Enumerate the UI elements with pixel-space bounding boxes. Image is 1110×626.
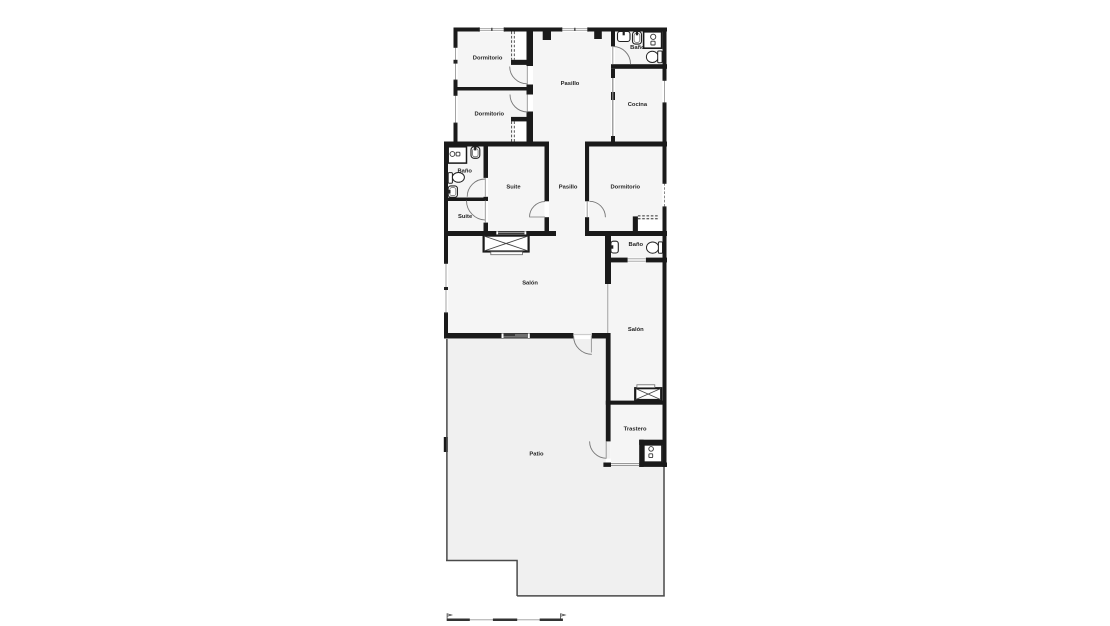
svg-text:Cocina: Cocina: [628, 102, 648, 108]
svg-text:Patio: Patio: [529, 452, 544, 458]
svg-text:Dormitorio: Dormitorio: [473, 55, 503, 61]
svg-text:Suite: Suite: [458, 214, 473, 220]
svg-text:Pasillo: Pasillo: [561, 81, 580, 87]
svg-text:Salón: Salón: [628, 327, 644, 333]
svg-text:Pasillo: Pasillo: [559, 185, 578, 191]
svg-text:Baño: Baño: [457, 169, 472, 175]
svg-text:Dormitorio: Dormitorio: [474, 112, 504, 118]
svg-text:Baño: Baño: [629, 242, 644, 248]
svg-text:Salón: Salón: [522, 280, 538, 286]
svg-text:Baño: Baño: [630, 45, 645, 51]
svg-text:Trastero: Trastero: [624, 427, 647, 433]
svg-text:Dormitorio: Dormitorio: [610, 185, 640, 191]
svg-text:Suite: Suite: [506, 185, 521, 191]
